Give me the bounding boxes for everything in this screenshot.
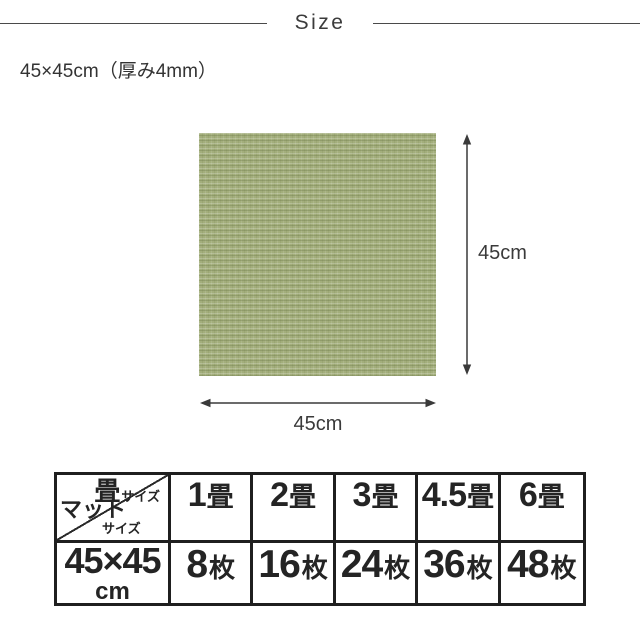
tatami-header-4-5jo: 4.5 畳 — [418, 475, 500, 543]
tatami-header-6jo: 6 畳 — [501, 475, 583, 543]
corner-mat-sub: サイズ — [102, 522, 141, 535]
tatami-header-2jo: 2 畳 — [253, 475, 335, 543]
tatami-header-3jo: 3 畳 — [336, 475, 418, 543]
sheet-count-unit: 枚 — [384, 548, 410, 585]
carpet-tile-swatch — [199, 133, 436, 376]
corner-mat-label: マット サイズ — [60, 499, 141, 535]
tatami-header-1jo: 1 畳 — [171, 475, 253, 543]
tatami-unit: 畳 — [289, 475, 316, 514]
section-title-row: Size — [0, 10, 640, 36]
size-info-page: Size 45×45cm（厚み4mm） 45cm 45cm 畳 サイズ マット … — [0, 0, 640, 640]
sheet-count-6jo: 48 枚 — [501, 543, 583, 603]
height-dimension-label: 45cm — [478, 242, 527, 265]
sheet-count-2jo: 16 枚 — [253, 543, 335, 603]
mat-size-cell: 45×45 cm — [57, 543, 171, 603]
sheet-count-unit: 枚 — [209, 548, 235, 585]
tatami-unit: 畳 — [467, 475, 494, 514]
section-title: Size — [295, 11, 346, 35]
tatami-number: 6 — [519, 476, 537, 515]
height-dimension-arrow — [459, 133, 475, 376]
tatami-number: 2 — [270, 476, 288, 515]
sheet-count-number: 36 — [423, 543, 464, 587]
sheet-count-unit: 枚 — [550, 548, 576, 585]
sheet-count-number: 24 — [341, 543, 382, 587]
mat-size-dimensions: 45×45 — [64, 543, 160, 579]
mat-size-unit: cm — [95, 580, 130, 604]
sheet-count-4-5jo: 36 枚 — [418, 543, 500, 603]
sheet-count-number: 48 — [507, 543, 548, 587]
sheet-count-1jo: 8 枚 — [171, 543, 253, 603]
table-corner-cell: 畳 サイズ マット サイズ — [57, 475, 171, 543]
tatami-number: 1 — [188, 476, 206, 515]
sheet-count-unit: 枚 — [467, 548, 493, 585]
sheet-count-number: 8 — [186, 543, 207, 587]
size-spec-text: 45×45cm（厚み4mm） — [20, 56, 217, 83]
width-dimension-label: 45cm — [199, 413, 437, 436]
corner-mat-main: マット — [60, 499, 141, 521]
tatami-mat-conversion-table: 畳 サイズ マット サイズ 1 畳 2 畳 3 畳 4.5 畳 6 畳 — [54, 472, 586, 606]
tatami-unit: 畳 — [207, 475, 234, 514]
tatami-number: 3 — [353, 476, 371, 515]
width-dimension-arrow — [199, 395, 437, 411]
sheet-count-unit: 枚 — [302, 548, 328, 585]
tatami-unit: 畳 — [371, 475, 398, 514]
title-rule-right — [373, 23, 640, 24]
sheet-count-number: 16 — [258, 543, 299, 587]
tatami-number: 4.5 — [422, 476, 466, 515]
tatami-unit: 畳 — [538, 475, 565, 514]
sheet-count-3jo: 24 枚 — [336, 543, 418, 603]
title-rule-left — [0, 23, 267, 24]
